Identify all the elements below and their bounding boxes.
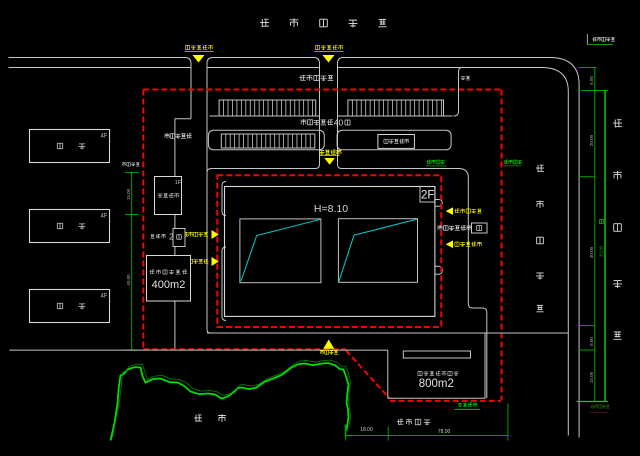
svg-text:20.00: 20.00 bbox=[589, 134, 594, 146]
svg-text:H=8.10: H=8.10 bbox=[314, 203, 348, 215]
svg-text:8.00: 8.00 bbox=[589, 337, 594, 346]
svg-text:800m2: 800m2 bbox=[419, 378, 454, 390]
svg-text:40: 40 bbox=[334, 118, 344, 128]
svg-text:15.00: 15.00 bbox=[126, 188, 131, 200]
svg-text:400m2: 400m2 bbox=[152, 279, 186, 291]
svg-text:6.00: 6.00 bbox=[589, 76, 594, 85]
svg-text:15.00: 15.00 bbox=[589, 371, 594, 383]
svg-text:30.00: 30.00 bbox=[589, 246, 594, 258]
svg-text:30.00: 30.00 bbox=[598, 245, 603, 257]
svg-text:4F: 4F bbox=[100, 214, 107, 220]
svg-text:4F: 4F bbox=[100, 294, 107, 300]
svg-text:40.00: 40.00 bbox=[126, 274, 131, 286]
svg-text:4F: 4F bbox=[100, 134, 107, 140]
svg-text:2: 2 bbox=[169, 233, 174, 242]
svg-text:18.00: 18.00 bbox=[360, 427, 373, 433]
svg-text:2F: 2F bbox=[421, 190, 434, 202]
svg-text:78.00: 78.00 bbox=[438, 429, 451, 435]
svg-text:1F: 1F bbox=[175, 180, 182, 186]
